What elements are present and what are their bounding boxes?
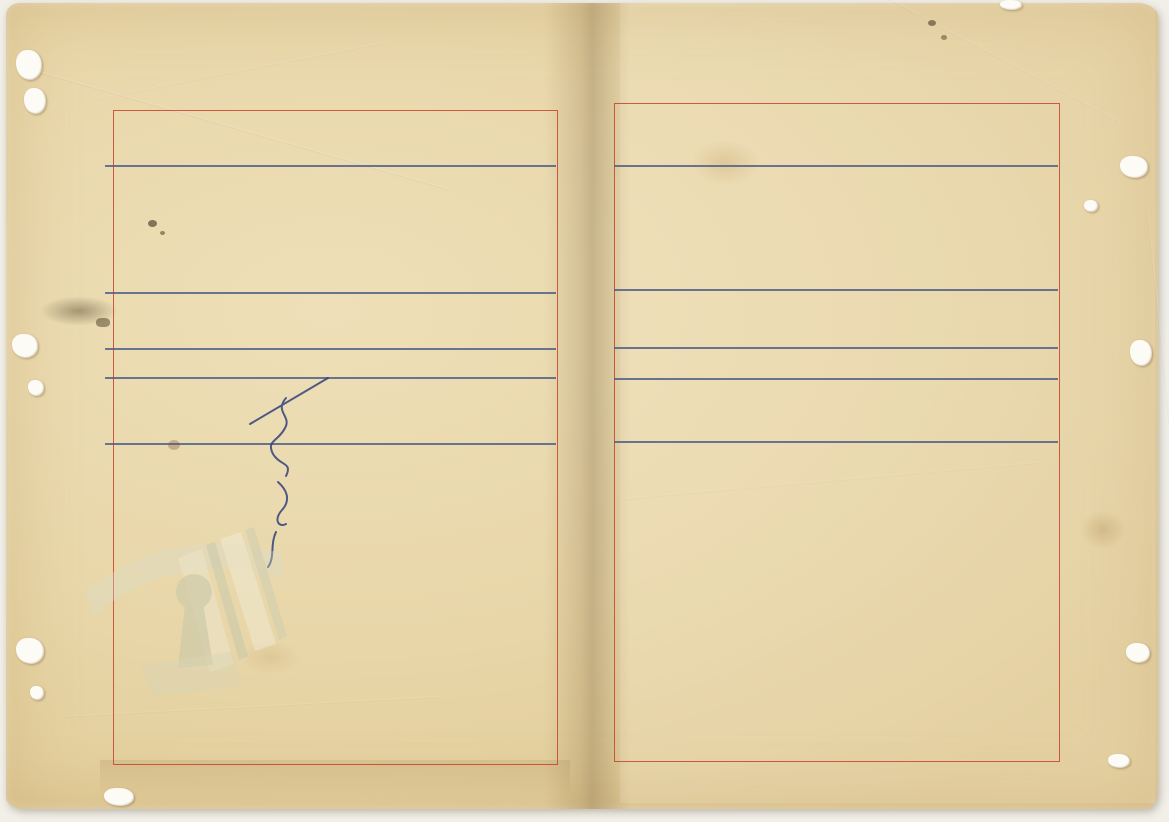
paper-tear <box>1084 200 1098 212</box>
rule-line <box>105 165 556 167</box>
paper-hole <box>28 380 44 396</box>
paper-tear <box>104 788 134 806</box>
rule-line <box>614 165 1058 167</box>
paper-hole <box>24 88 46 114</box>
scanned-document <box>0 0 1169 822</box>
approver-signature <box>216 370 331 570</box>
paper-hole <box>30 686 44 700</box>
paper-hole <box>16 50 42 80</box>
right-page-table <box>614 103 1060 762</box>
rule-line <box>614 441 1058 443</box>
rule-line <box>105 292 556 294</box>
paper-hole <box>12 334 38 358</box>
paper-tear <box>1120 156 1148 178</box>
rule-line <box>614 378 1058 380</box>
rule-line <box>105 348 556 350</box>
rule-line <box>614 347 1058 349</box>
paper-tear <box>1130 340 1152 366</box>
paper-tear <box>1108 754 1130 768</box>
paper-tear <box>1000 0 1022 10</box>
paper-hole <box>16 638 44 664</box>
paper-tear <box>1126 643 1150 663</box>
left-page-table <box>113 110 558 765</box>
rule-line <box>614 289 1058 291</box>
